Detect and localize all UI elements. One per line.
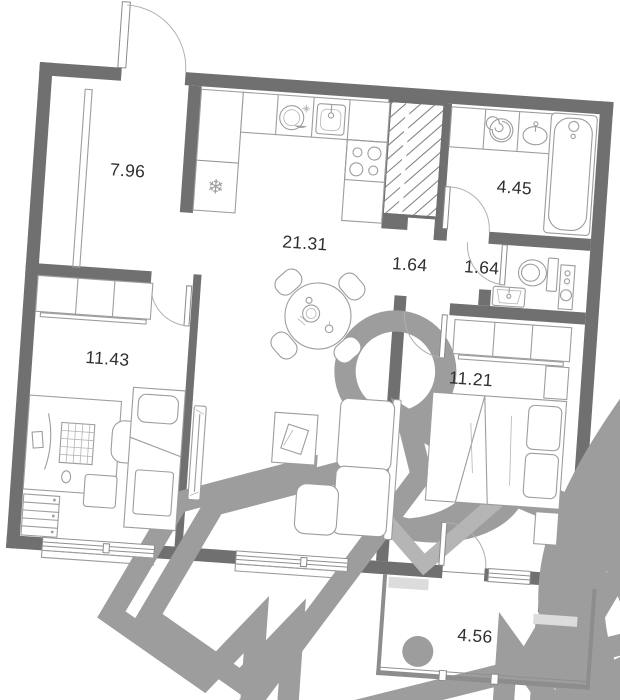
coffee-table-icon — [272, 412, 318, 465]
water-meters-icon — [558, 265, 575, 310]
dining-table-icon — [266, 264, 370, 368]
entrance-door-leaf — [118, 2, 131, 68]
floor-plan-svg: ❄ — [0, 0, 620, 700]
wc-door-leaf — [500, 245, 508, 285]
kitchen: ❄ — [193, 89, 390, 223]
pillow-icon — [137, 394, 179, 425]
floor-plan: ❄ — [0, 0, 620, 700]
bedroom-left-door — [148, 283, 192, 326]
kitchen-counter — [241, 92, 390, 142]
wall-wc-stub — [478, 289, 491, 306]
bathtub-icon — [543, 113, 597, 236]
area-label-bathroom: 4.45 — [496, 176, 533, 198]
bathroom-door — [442, 187, 492, 232]
pillow-icon — [526, 405, 562, 451]
nightstand — [534, 512, 559, 546]
entrance-door — [118, 2, 190, 73]
toilet-icon — [517, 256, 558, 292]
balcony-glazing-tick — [439, 670, 447, 680]
area-label-corridor: 1.64 — [392, 253, 429, 275]
bedside-table — [83, 474, 117, 508]
area-label-bedroom-left: 11.43 — [85, 347, 130, 370]
window-living — [235, 551, 348, 579]
nightstand — [544, 366, 569, 400]
pillow-icon — [523, 453, 559, 499]
area-label-hallway: 7.96 — [109, 159, 146, 181]
balcony-glazing-tick — [491, 674, 499, 684]
sill — [388, 577, 429, 591]
drawer-unit — [21, 494, 60, 537]
entrance-door-swing-arc — [123, 5, 190, 72]
balcony-wall-left — [376, 574, 387, 675]
area-label-wc: 1.64 — [463, 256, 500, 278]
window-mullion — [300, 557, 307, 566]
bathroom-door-swing-arc — [447, 187, 492, 232]
window-bedroom-right — [488, 569, 531, 585]
window-mullion — [103, 544, 110, 553]
wc-sink-icon — [492, 286, 525, 307]
single-bed — [124, 387, 186, 530]
double-bed — [425, 392, 566, 509]
wardrobe-rail — [73, 89, 92, 267]
area-label-kitchen-living: 21.31 — [282, 231, 329, 254]
area-label-balcony: 4.56 — [457, 625, 494, 647]
area-label-bedroom-right: 11.21 — [448, 367, 493, 390]
snowflake-fridge-icon: ❄ — [207, 174, 225, 199]
